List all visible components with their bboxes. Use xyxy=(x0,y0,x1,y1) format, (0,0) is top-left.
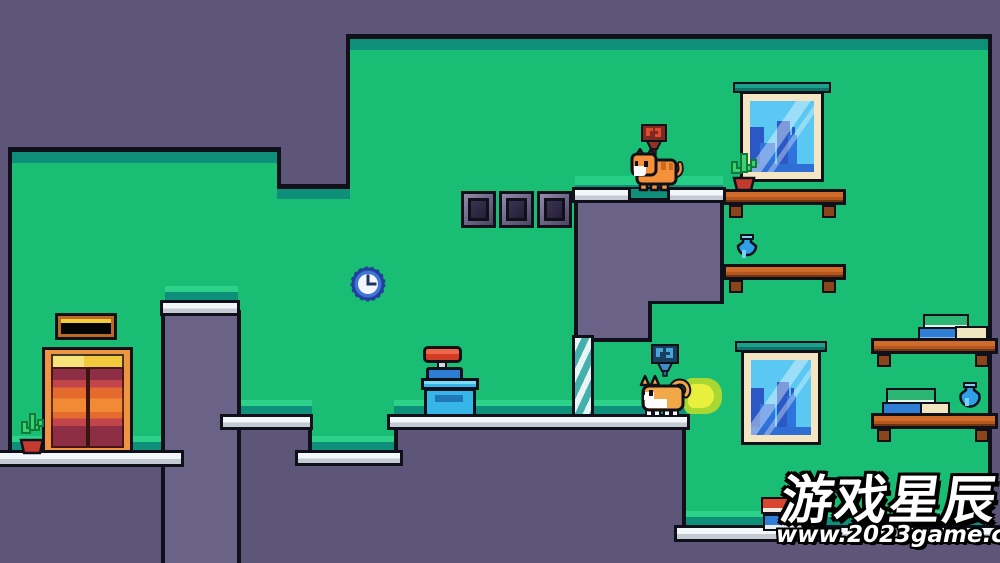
shelf-bracket xyxy=(822,280,836,293)
window-frame xyxy=(741,350,821,445)
pillar-cap-ledge xyxy=(160,300,240,316)
blue-vase xyxy=(954,382,986,416)
cat-idle[interactable] xyxy=(630,148,684,192)
shelf-bracket xyxy=(975,429,989,442)
shelf-cactus xyxy=(728,150,760,194)
shelf-bracket xyxy=(729,205,743,218)
cat-running[interactable] xyxy=(638,370,696,418)
wall-clock xyxy=(350,266,386,302)
shelf-bracket xyxy=(729,280,743,293)
wall-shelf xyxy=(723,264,846,280)
ceiling-trim xyxy=(350,39,988,50)
elevator-sign xyxy=(55,313,117,340)
watermark-url: www.2023game.com xyxy=(776,522,1000,548)
stone-block xyxy=(537,191,572,228)
wall-pillar xyxy=(161,310,241,563)
stone-block xyxy=(461,191,496,228)
shelf-bracket xyxy=(877,354,891,367)
elevator-door[interactable] xyxy=(42,347,133,453)
game-viewport: 游戏星辰 www.2023game.com xyxy=(0,0,1000,563)
window-glass xyxy=(751,360,811,435)
ceiling-trim xyxy=(277,189,350,199)
floor-ledge xyxy=(220,414,313,430)
floor-ledge xyxy=(295,450,403,466)
stone-block xyxy=(499,191,534,228)
striped-pole xyxy=(572,335,594,417)
cactus-plant xyxy=(18,408,46,456)
blue-vase xyxy=(732,234,762,268)
wall-shelf xyxy=(871,338,998,354)
shelf-bracket xyxy=(877,429,891,442)
ceiling-trim xyxy=(12,152,277,163)
shelf-bracket xyxy=(822,205,836,218)
shelf-bracket xyxy=(975,354,989,367)
window-lower xyxy=(735,341,827,445)
crate-body xyxy=(424,388,476,417)
elevator-door-panels xyxy=(51,367,124,448)
wall-shelf xyxy=(723,189,846,205)
wall-shelf xyxy=(871,413,998,429)
